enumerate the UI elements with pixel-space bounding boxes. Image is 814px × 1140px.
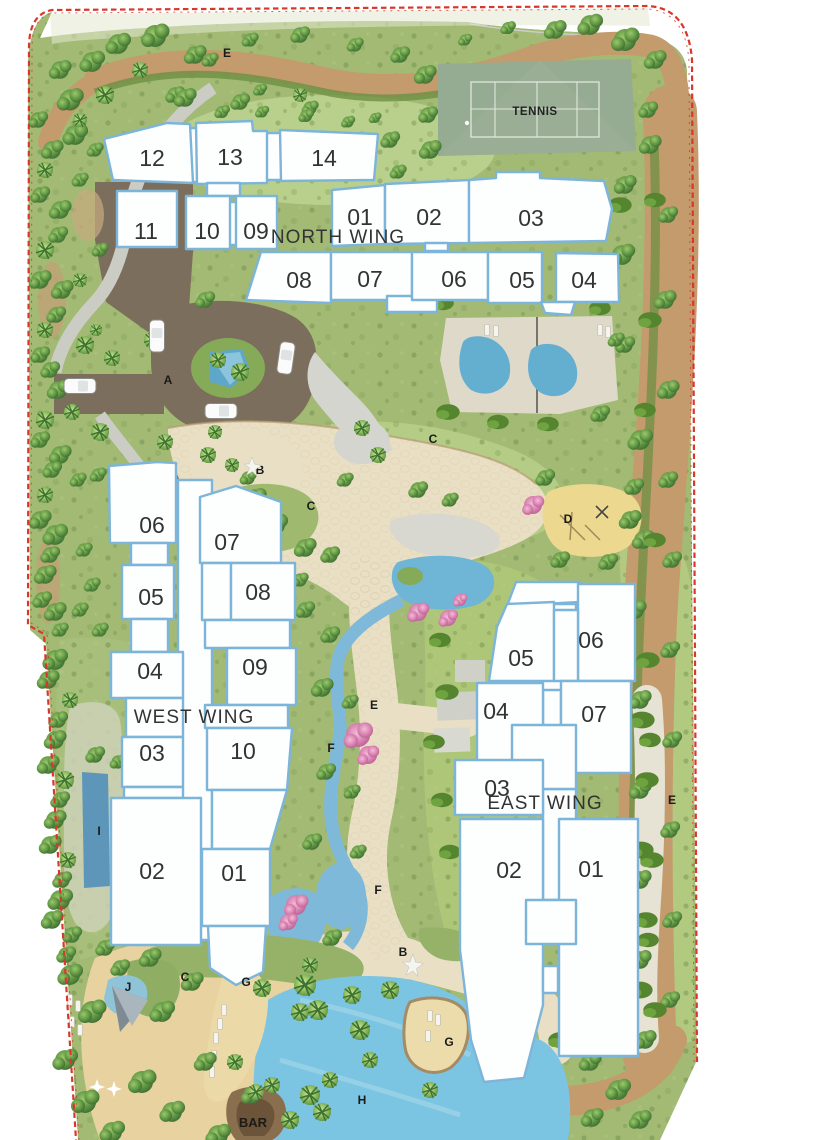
svg-text:12: 12 bbox=[139, 145, 165, 171]
svg-text:10: 10 bbox=[230, 738, 256, 764]
svg-text:06: 06 bbox=[441, 266, 467, 292]
svg-text:05: 05 bbox=[509, 267, 535, 293]
svg-text:14: 14 bbox=[311, 145, 337, 171]
svg-text:04: 04 bbox=[483, 698, 509, 724]
svg-text:D: D bbox=[564, 512, 573, 526]
svg-text:03: 03 bbox=[139, 740, 165, 766]
svg-text:05: 05 bbox=[508, 645, 534, 671]
svg-text:03: 03 bbox=[518, 205, 544, 231]
svg-text:F: F bbox=[374, 883, 381, 897]
svg-text:H: H bbox=[358, 1093, 367, 1107]
svg-text:J: J bbox=[125, 980, 132, 994]
svg-text:WEST WING: WEST WING bbox=[134, 707, 255, 728]
svg-text:G: G bbox=[444, 1035, 453, 1049]
svg-text:09: 09 bbox=[243, 218, 269, 244]
svg-text:BAR: BAR bbox=[239, 1115, 268, 1130]
svg-text:10: 10 bbox=[194, 218, 220, 244]
svg-text:08: 08 bbox=[286, 267, 312, 293]
svg-text:E: E bbox=[370, 698, 378, 712]
svg-text:F: F bbox=[327, 741, 334, 755]
svg-text:01: 01 bbox=[578, 856, 604, 882]
svg-text:G: G bbox=[241, 975, 250, 989]
svg-text:TENNIS: TENNIS bbox=[512, 106, 557, 118]
svg-text:B: B bbox=[399, 945, 408, 959]
svg-text:06: 06 bbox=[578, 627, 604, 653]
svg-text:04: 04 bbox=[137, 658, 163, 684]
svg-text:EAST WING: EAST WING bbox=[487, 793, 602, 814]
svg-text:08: 08 bbox=[245, 579, 271, 605]
svg-text:A: A bbox=[164, 373, 173, 387]
svg-text:C: C bbox=[307, 499, 316, 513]
svg-text:C: C bbox=[429, 432, 438, 446]
svg-text:06: 06 bbox=[139, 512, 165, 538]
svg-text:I: I bbox=[97, 824, 100, 838]
svg-text:C: C bbox=[181, 970, 190, 984]
svg-text:07: 07 bbox=[214, 529, 240, 555]
svg-text:13: 13 bbox=[217, 144, 243, 170]
svg-text:11: 11 bbox=[134, 218, 158, 244]
svg-text:01: 01 bbox=[221, 860, 247, 886]
svg-text:09: 09 bbox=[242, 654, 268, 680]
svg-text:NORTH WING: NORTH WING bbox=[271, 227, 405, 248]
svg-text:E: E bbox=[223, 46, 231, 60]
svg-text:05: 05 bbox=[138, 584, 164, 610]
svg-text:07: 07 bbox=[357, 266, 383, 292]
svg-text:02: 02 bbox=[416, 204, 442, 230]
svg-text:E: E bbox=[668, 793, 676, 807]
svg-text:02: 02 bbox=[496, 857, 522, 883]
svg-text:04: 04 bbox=[571, 267, 597, 293]
svg-text:07: 07 bbox=[581, 701, 607, 727]
svg-text:02: 02 bbox=[139, 858, 165, 884]
